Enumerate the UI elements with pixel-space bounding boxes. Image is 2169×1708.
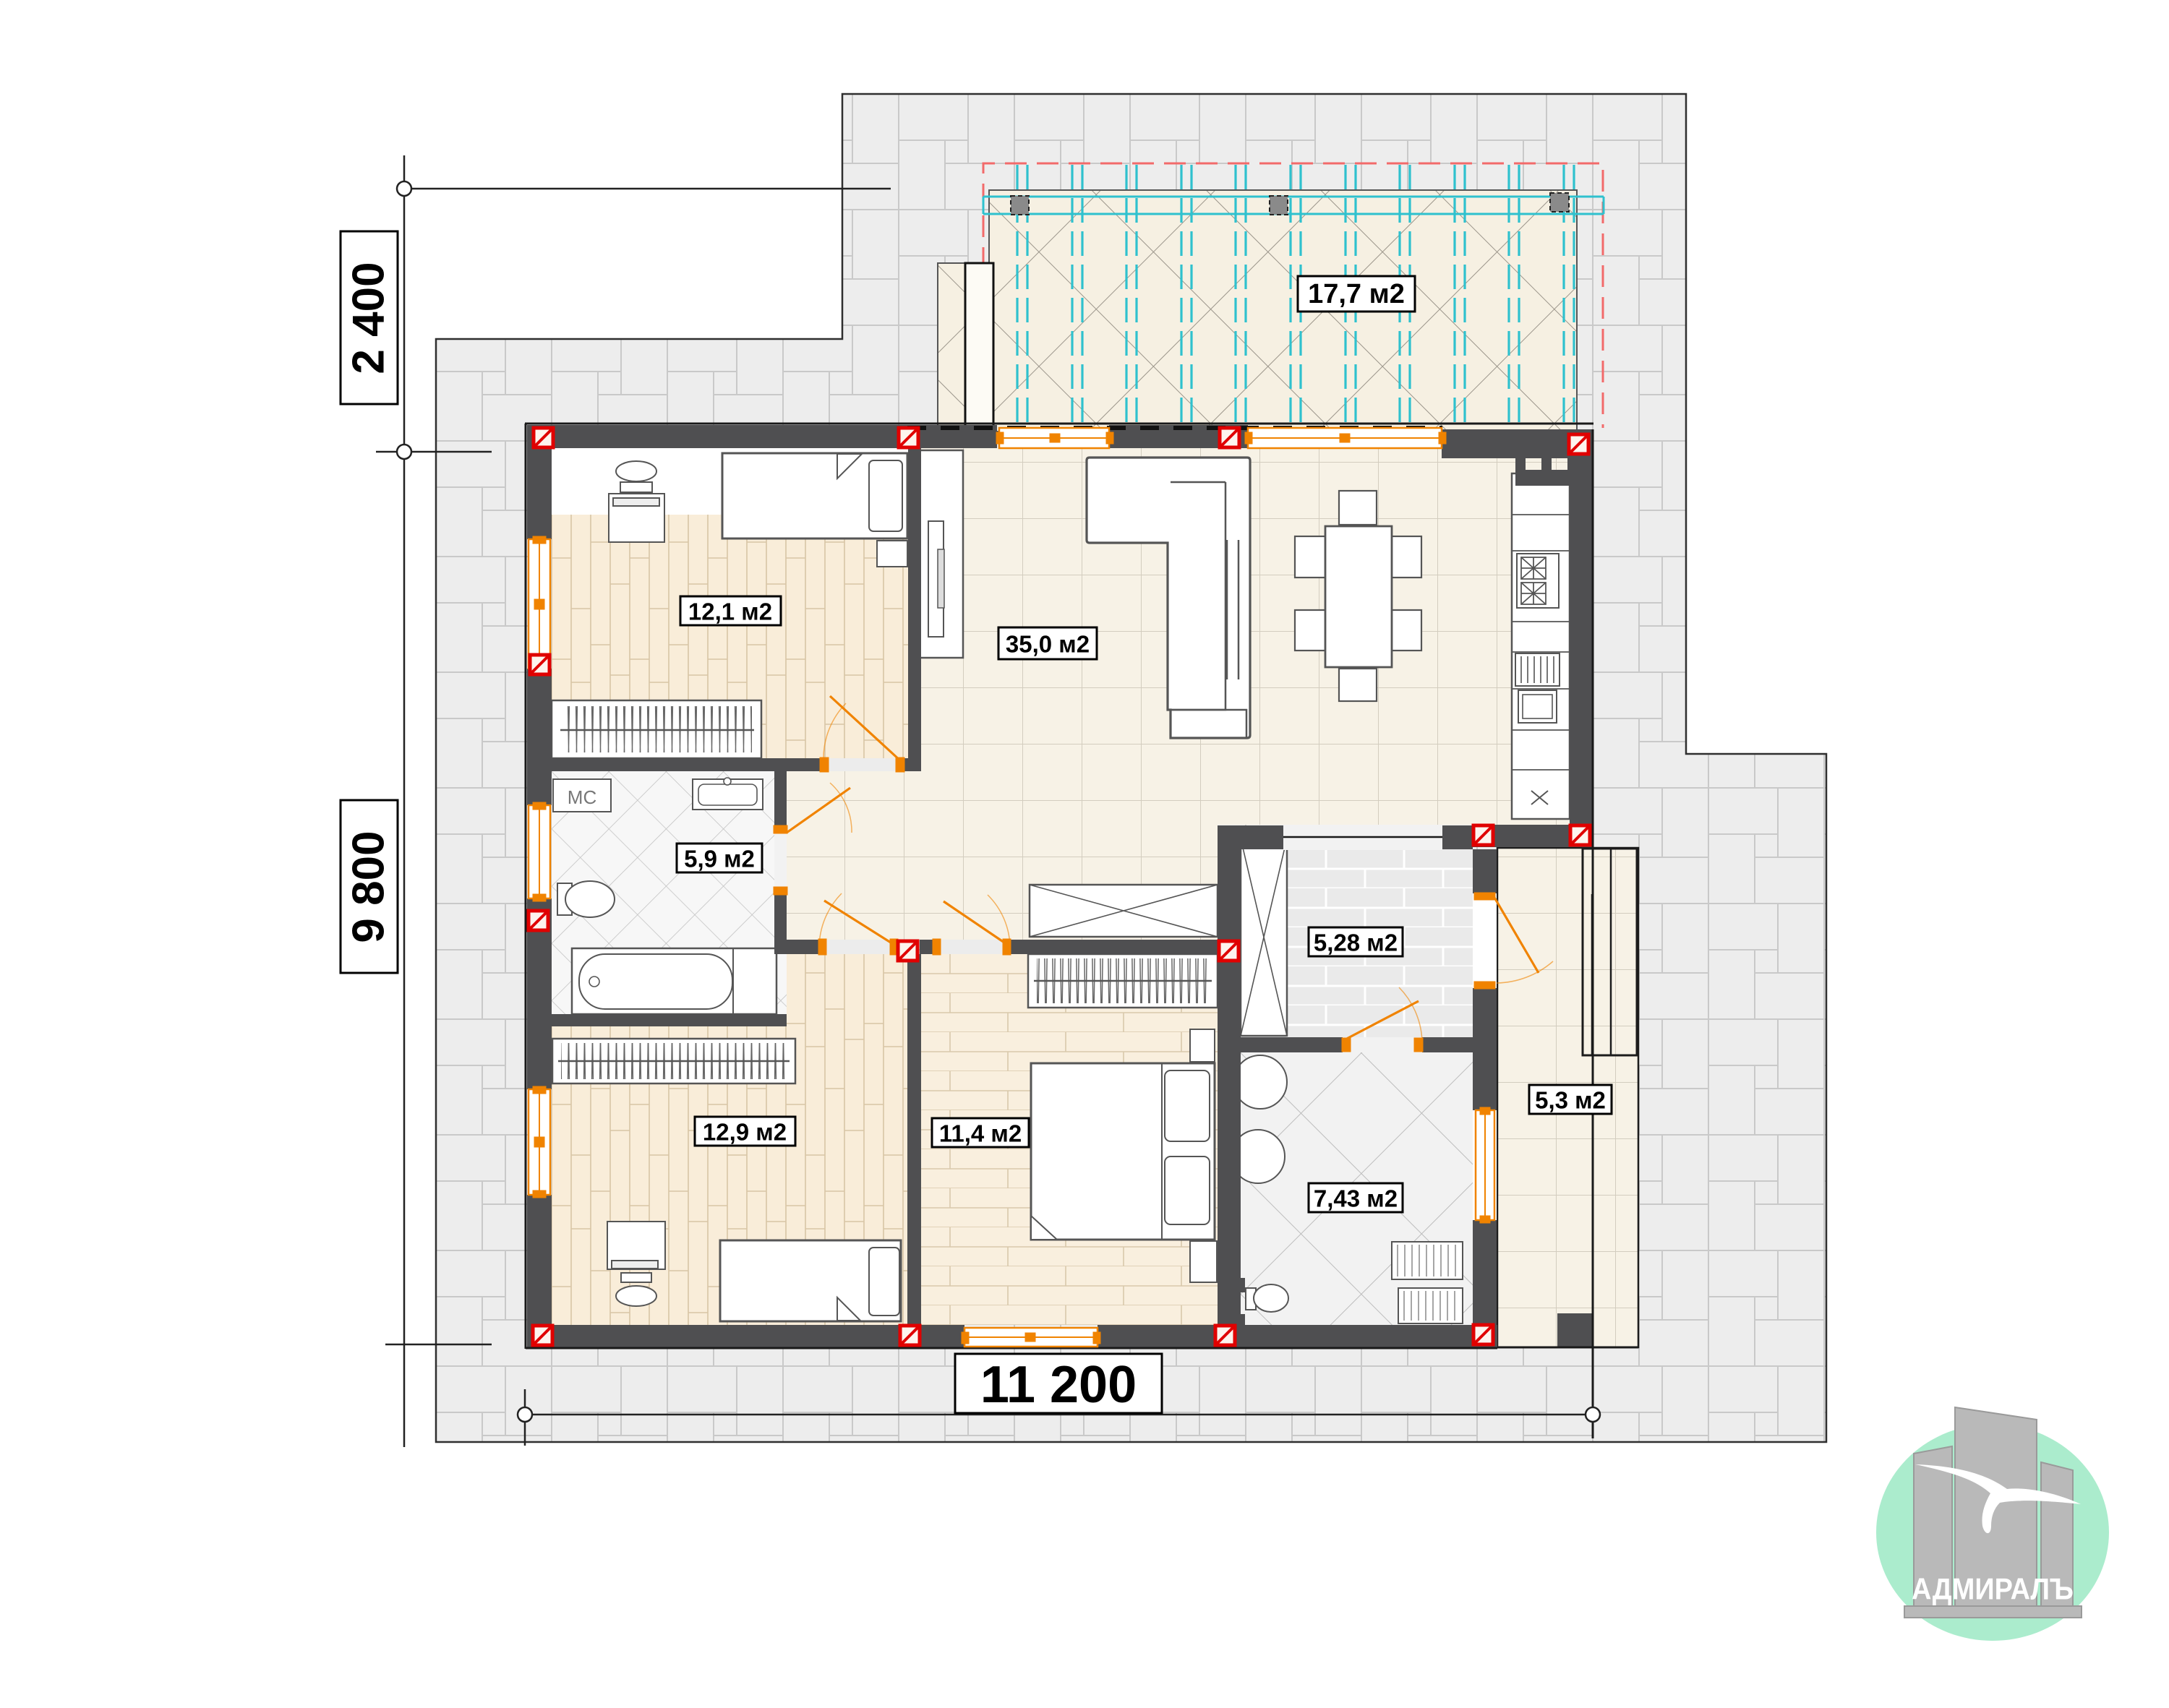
svg-text:5,9 м2: 5,9 м2 xyxy=(684,846,755,872)
svg-text:5,28 м2: 5,28 м2 xyxy=(1314,930,1398,956)
svg-text:9 800: 9 800 xyxy=(344,831,394,943)
svg-text:35,0 м2: 35,0 м2 xyxy=(1006,631,1090,658)
svg-text:11,4 м2: 11,4 м2 xyxy=(939,1120,1022,1147)
svg-text:7,43 м2: 7,43 м2 xyxy=(1314,1185,1398,1212)
svg-text:МС: МС xyxy=(568,786,596,808)
svg-text:АДМИРАЛЪ: АДМИРАЛЪ xyxy=(1912,1572,2074,1606)
svg-text:5,3 м2: 5,3 м2 xyxy=(1535,1087,1606,1114)
svg-text:11 200: 11 200 xyxy=(980,1356,1137,1414)
svg-text:12,1 м2: 12,1 м2 xyxy=(688,598,772,625)
svg-text:2 400: 2 400 xyxy=(344,262,394,374)
svg-text:17,7 м2: 17,7 м2 xyxy=(1308,279,1405,309)
svg-text:12,9 м2: 12,9 м2 xyxy=(703,1119,787,1146)
